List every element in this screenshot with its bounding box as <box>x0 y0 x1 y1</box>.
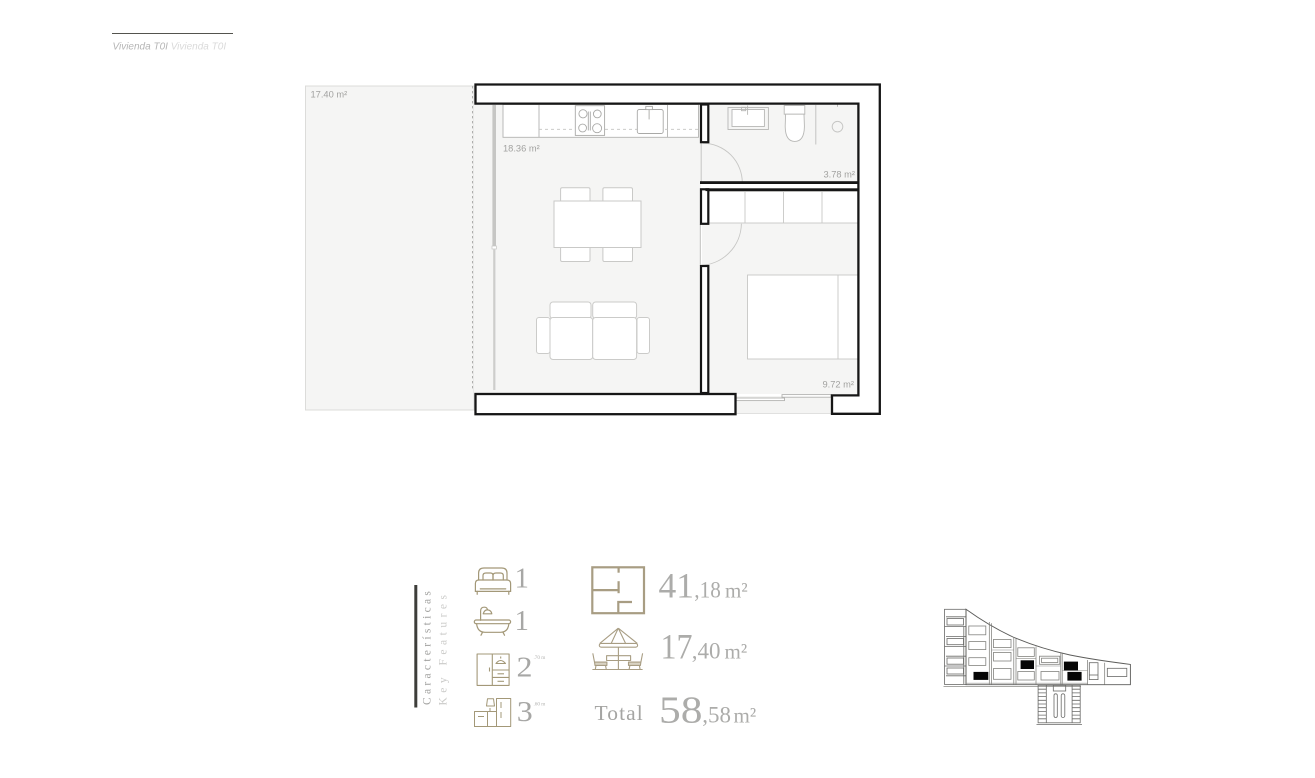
svg-text:m²: m² <box>734 703 757 727</box>
svg-text:58: 58 <box>659 689 703 731</box>
svg-text:3.78 m²: 3.78 m² <box>824 170 856 180</box>
svg-text:9.72 m²: 9.72 m² <box>823 380 855 390</box>
svg-text:17.40 m²: 17.40 m² <box>311 90 348 100</box>
svg-text:41: 41 <box>659 566 695 606</box>
svg-text:1: 1 <box>515 606 529 637</box>
svg-text:.60 m: .60 m <box>534 702 546 708</box>
svg-text:Características: Características <box>422 588 434 705</box>
svg-text:1: 1 <box>515 564 529 595</box>
svg-text:.70 m: .70 m <box>534 655 546 661</box>
svg-text:,18: ,18 <box>694 578 721 603</box>
svg-text:Total: Total <box>595 701 644 725</box>
svg-text:,40: ,40 <box>692 638 721 663</box>
svg-text:Key Features: Key Features <box>438 591 450 706</box>
svg-text:18.36 m²: 18.36 m² <box>503 144 540 154</box>
svg-text:m²: m² <box>725 639 748 663</box>
svg-text:,58: ,58 <box>702 702 731 727</box>
svg-text:2: 2 <box>517 652 533 683</box>
svg-text:3: 3 <box>517 697 533 728</box>
svg-text:Vivienda T0I Vivienda T0I: Vivienda T0I Vivienda T0I <box>113 41 227 52</box>
svg-text:m²: m² <box>725 579 748 603</box>
svg-text:17: 17 <box>661 626 693 666</box>
